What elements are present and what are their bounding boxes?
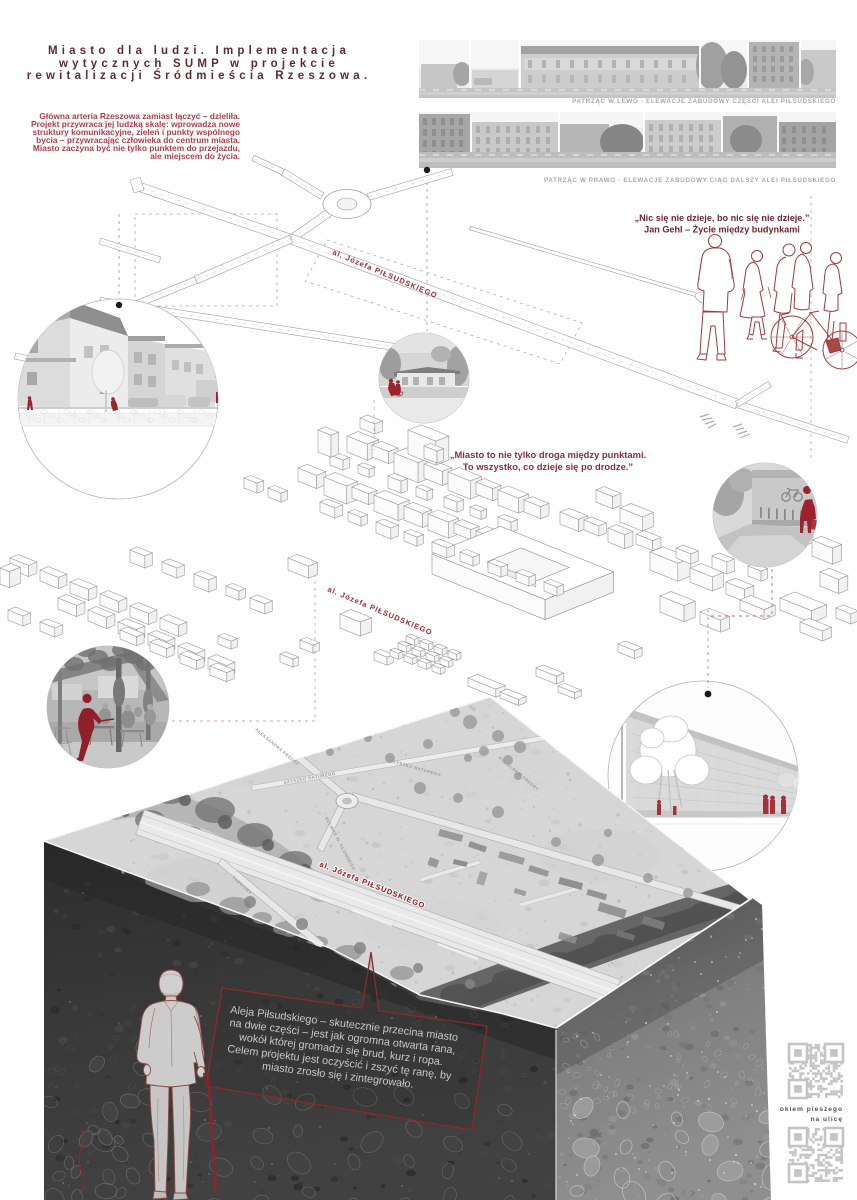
svg-text:ALEKSANDRA FREDRY: ALEKSANDRA FREDRY [254, 727, 300, 767]
svg-text:„Miasto to nie tylko droga mię: „Miasto to nie tylko droga między punkta… [450, 449, 646, 460]
svg-text:„Nic się nie dzieje, bo nic si: „Nic się nie dzieje, bo nic się nie dzie… [635, 213, 810, 223]
svg-text:al. Józefa PIŁSUDSKIEGO: al. Józefa PIŁSUDSKIEGO [331, 248, 439, 301]
svg-text:Jan Gehl – Życie między budynk: Jan Gehl – Życie między budynkami [644, 225, 800, 235]
svg-text:okiem pieszego: okiem pieszego [780, 1106, 843, 1113]
svg-text:To wszystko, co dzieje się po: To wszystko, co dzieje się po drodze.” [463, 461, 633, 472]
svg-text:PATRZĄC W PRAWO - ELEWACJE ZAB: PATRZĄC W PRAWO - ELEWACJE ZABUDOWY CIĄG… [544, 177, 836, 184]
svg-text:na ulicę: na ulicę [810, 1116, 843, 1123]
svg-text:PATRZĄC W LEWO - ELEWACJE ZABU: PATRZĄC W LEWO - ELEWACJE ZABUDOWY CZĘŚC… [572, 98, 836, 105]
